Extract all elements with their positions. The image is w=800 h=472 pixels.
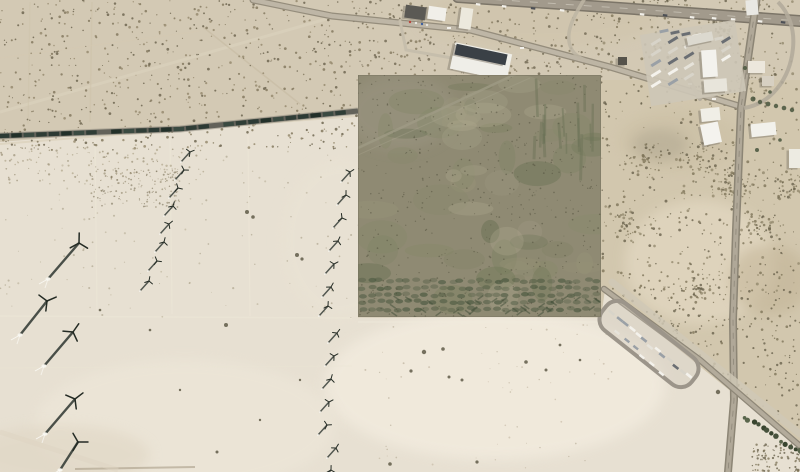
building: [704, 78, 728, 93]
tree: [743, 66, 747, 70]
desert-bush: [545, 369, 548, 372]
roadside-bush: [794, 447, 798, 451]
tree: [758, 100, 762, 104]
train-car: [74, 131, 85, 136]
train-car: [11, 133, 22, 138]
roadside-bush: [764, 427, 769, 432]
tree: [755, 148, 759, 152]
desert-bush: [475, 460, 478, 463]
train-car: [86, 130, 97, 135]
tree: [751, 97, 756, 102]
roadside-bush: [783, 442, 788, 447]
train-car: [149, 128, 160, 133]
tree: [790, 108, 794, 112]
building: [750, 122, 776, 138]
roadside-bush: [788, 445, 793, 450]
desert-bush: [559, 344, 562, 347]
highway-overpass: [745, 0, 758, 15]
building: [762, 76, 774, 86]
parked-car: [415, 22, 417, 24]
desert-bush: [300, 257, 303, 260]
train-car: [174, 127, 185, 132]
roadside-bush: [773, 433, 779, 439]
train-car: [0, 134, 9, 139]
train-car: [61, 131, 72, 136]
train-car: [36, 132, 47, 137]
parked-car: [426, 24, 428, 26]
tree: [766, 102, 771, 107]
desert-bush: [716, 390, 720, 394]
tree: [778, 138, 782, 142]
satellite-map-view[interactable]: [0, 0, 800, 472]
desert-bush: [409, 369, 412, 372]
desert-bush: [461, 379, 464, 382]
roadside-bush: [779, 440, 783, 444]
roadside-bush: [745, 418, 750, 423]
desert-bush: [179, 389, 181, 391]
building: [701, 50, 718, 78]
tree: [774, 104, 778, 108]
desert-bush: [441, 347, 445, 351]
desert-bush: [579, 359, 582, 362]
train-car: [161, 127, 172, 132]
desert-bush: [251, 215, 255, 219]
roadside-bush: [769, 431, 773, 435]
desert-bush: [245, 210, 249, 214]
desert-bush: [448, 376, 451, 379]
parked-car: [409, 21, 411, 23]
tree: [782, 106, 787, 111]
building: [427, 6, 447, 21]
desert-bush: [524, 360, 528, 364]
train-car: [124, 129, 135, 134]
tree: [768, 90, 772, 94]
train-car: [136, 128, 147, 133]
desert-bush: [388, 462, 392, 466]
desert-bush: [299, 379, 301, 381]
road-vehicle: [520, 47, 524, 49]
desert-bush: [224, 323, 228, 327]
building: [618, 57, 627, 65]
desert-bush: [295, 253, 299, 257]
building: [748, 61, 765, 73]
train-car: [24, 133, 35, 138]
parked-car: [421, 23, 423, 25]
truck-stop: [640, 20, 746, 106]
desert-bush: [259, 419, 261, 421]
satellite-imagery: [0, 0, 800, 472]
desert-bush: [216, 451, 219, 454]
building: [789, 149, 800, 168]
road-vehicle: [447, 27, 451, 29]
imagery-overlay-patch[interactable]: [343, 72, 623, 320]
desert-bush: [99, 309, 102, 312]
desert-bush: [422, 350, 426, 354]
building: [700, 107, 720, 122]
train-car: [49, 132, 60, 137]
road-vehicle: [712, 98, 716, 100]
roadside-bush: [756, 422, 760, 426]
train-car: [111, 129, 122, 134]
desert-bush: [149, 329, 152, 332]
